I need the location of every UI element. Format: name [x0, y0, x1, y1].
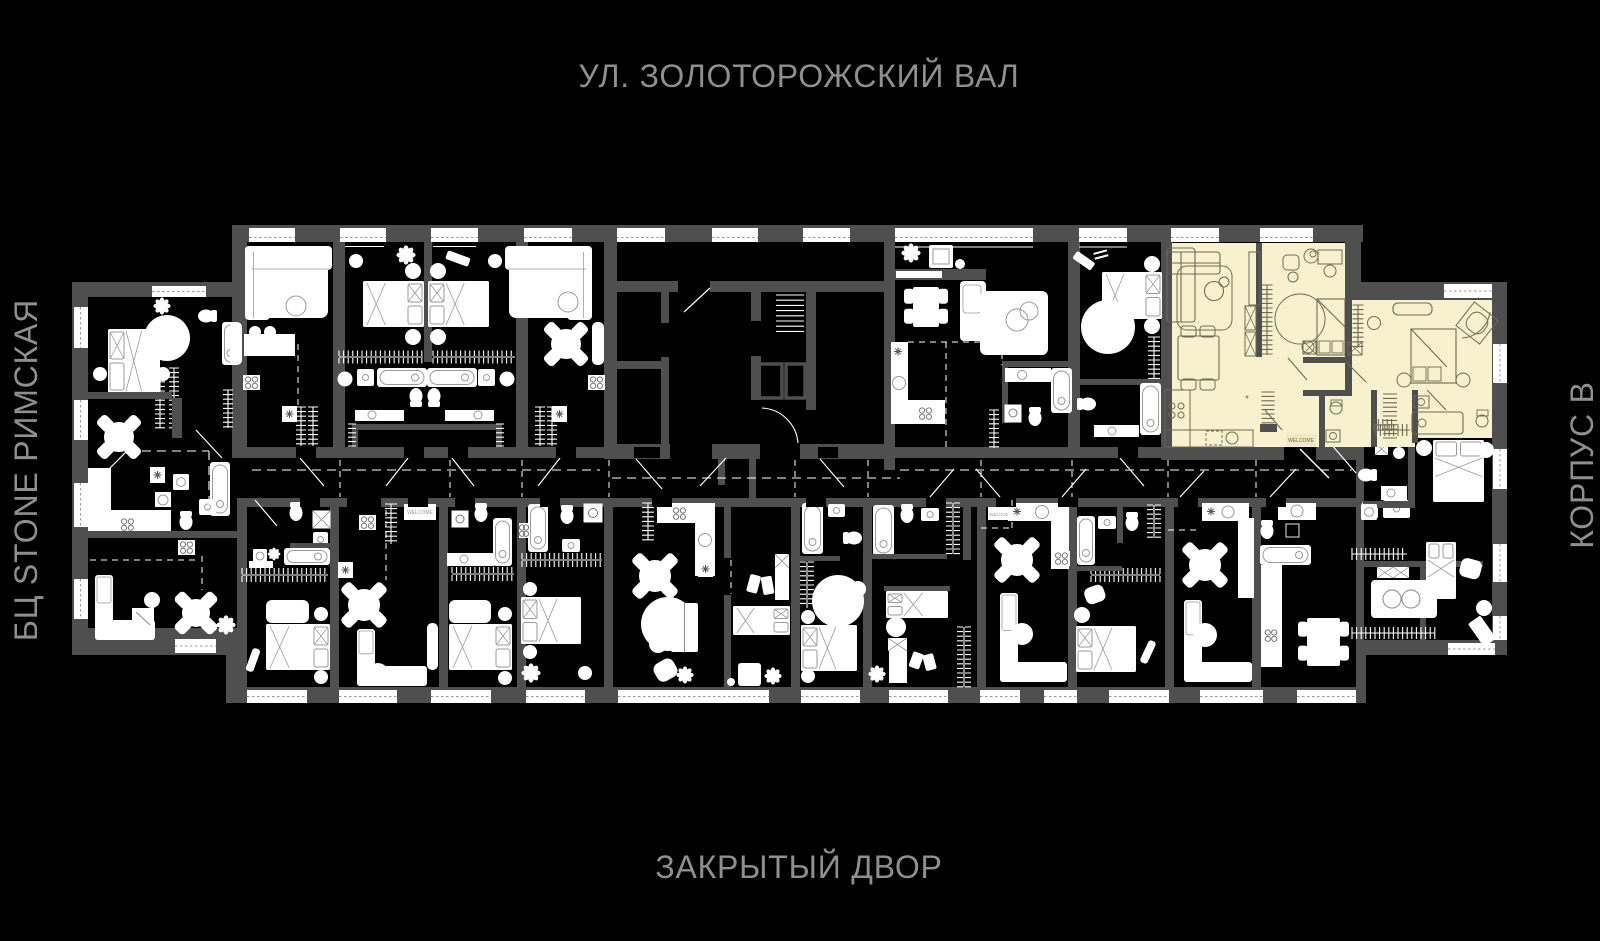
svg-text:*: * — [1245, 394, 1249, 405]
svg-text:WELCOME: WELCOME — [1288, 438, 1315, 444]
svg-text:ЗАКРЫТЫЙ ДВОР: ЗАКРЫТЫЙ ДВОР — [655, 849, 942, 885]
svg-text:БЦ STONE РИМСКАЯ: БЦ STONE РИМСКАЯ — [8, 299, 44, 641]
svg-text:УЛ. ЗОЛОТОРОЖСКИЙ ВАЛ: УЛ. ЗОЛОТОРОЖСКИЙ ВАЛ — [578, 58, 1019, 94]
svg-text:КОРПУС В: КОРПУС В — [1564, 381, 1600, 549]
svg-text:WELCOME: WELCOME — [407, 510, 434, 516]
